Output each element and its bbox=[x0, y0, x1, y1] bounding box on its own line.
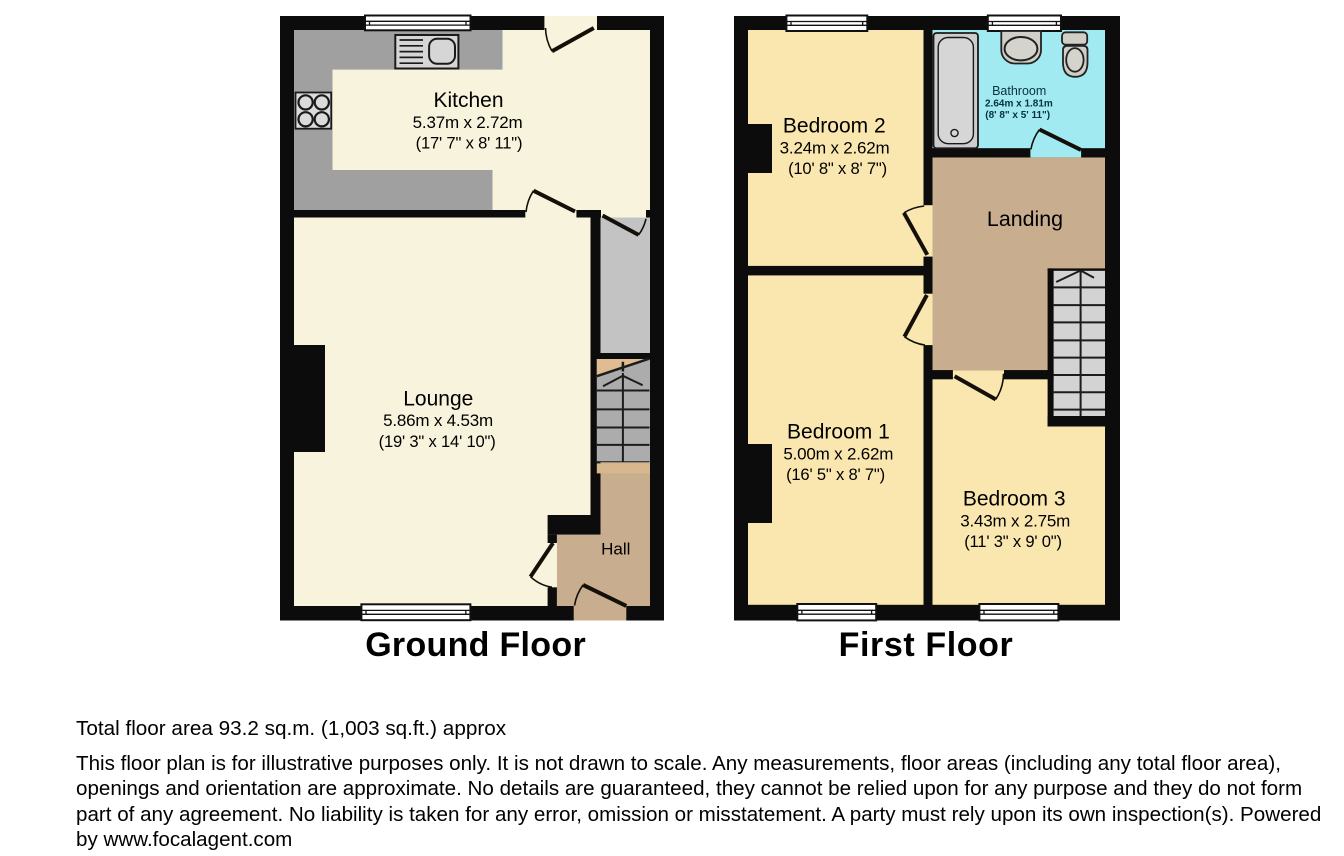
svg-text:Lounge: Lounge bbox=[403, 387, 473, 410]
svg-text:Bedroom 2: Bedroom 2 bbox=[783, 115, 886, 138]
svg-text:(16' 5" x 8' 7"): (16' 5" x 8' 7") bbox=[786, 465, 885, 484]
svg-text:(8' 8" x 5' 11"): (8' 8" x 5' 11") bbox=[985, 110, 1050, 121]
svg-text:(19' 3" x 14' 10"): (19' 3" x 14' 10") bbox=[379, 432, 496, 451]
svg-text:2.64m x 1.81m: 2.64m x 1.81m bbox=[985, 99, 1053, 110]
svg-text:5.37m x 2.72m: 5.37m x 2.72m bbox=[413, 113, 523, 132]
svg-text:(11' 3" x 9' 0"): (11' 3" x 9' 0") bbox=[964, 532, 1062, 551]
svg-text:3.24m x 2.62m: 3.24m x 2.62m bbox=[780, 138, 890, 157]
svg-text:Landing: Landing bbox=[987, 207, 1063, 231]
svg-text:(17' 7" x 8' 11"): (17' 7" x 8' 11") bbox=[416, 134, 523, 153]
svg-text:Kitchen: Kitchen bbox=[433, 89, 503, 112]
svg-text:Bedroom 1: Bedroom 1 bbox=[787, 421, 890, 444]
svg-text:Ground Floor: Ground Floor bbox=[365, 626, 586, 664]
svg-text:3.43m x 2.75m: 3.43m x 2.75m bbox=[960, 511, 1070, 530]
svg-text:5.86m x 4.53m: 5.86m x 4.53m bbox=[383, 411, 493, 430]
svg-text:(10' 8" x 8' 7"): (10' 8" x 8' 7") bbox=[788, 159, 887, 178]
svg-text:First Floor: First Floor bbox=[839, 626, 1014, 664]
svg-text:Bathroom: Bathroom bbox=[992, 84, 1046, 98]
svg-text:5.00m x 2.62m: 5.00m x 2.62m bbox=[783, 444, 893, 463]
svg-text:Bedroom 3: Bedroom 3 bbox=[963, 488, 1066, 511]
svg-text:Hall: Hall bbox=[601, 540, 630, 559]
